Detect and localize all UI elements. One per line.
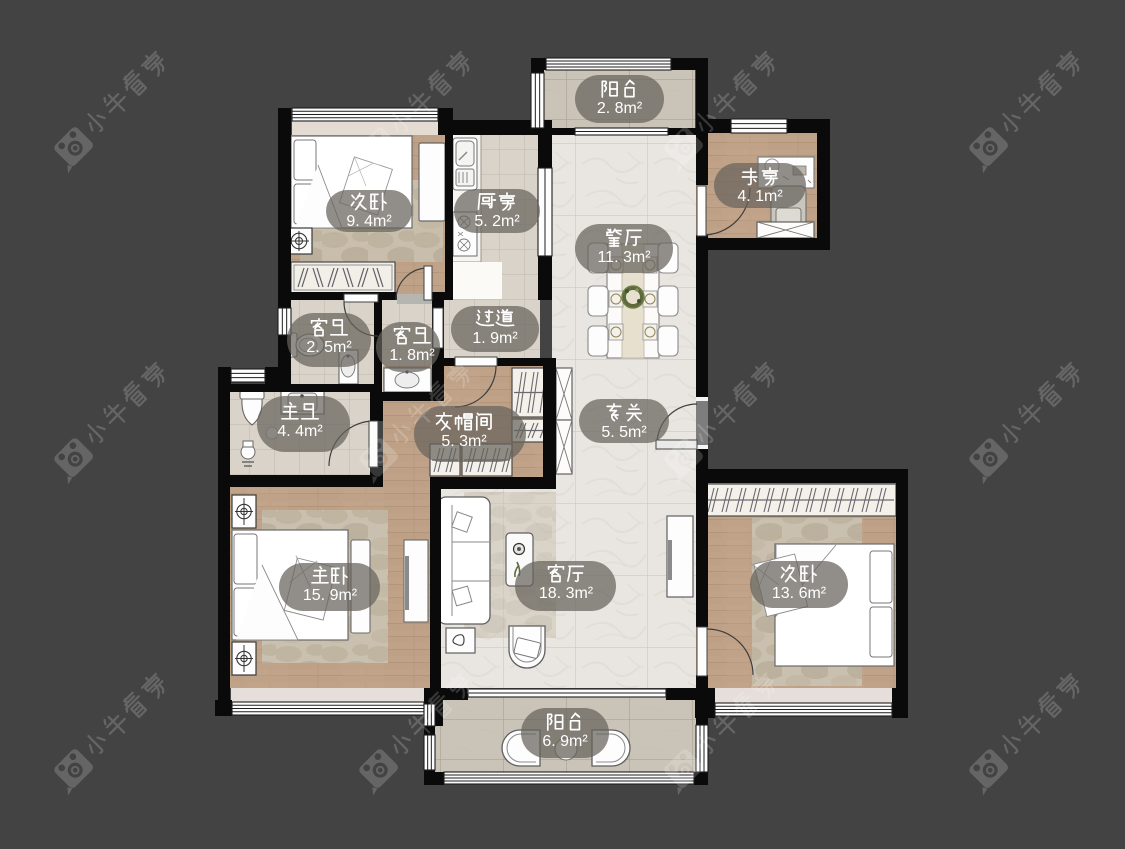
svg-text:9. 4m²: 9. 4m² <box>346 213 392 230</box>
svg-text:2. 5m²: 2. 5m² <box>306 339 352 356</box>
svg-text:2. 8m²: 2. 8m² <box>597 100 643 117</box>
svg-text:18. 3m²: 18. 3m² <box>539 585 594 602</box>
svg-text:5. 3m²: 5. 3m² <box>441 433 487 450</box>
svg-text:11. 3m²: 11. 3m² <box>597 249 651 266</box>
svg-text:15. 9m²: 15. 9m² <box>303 587 358 604</box>
svg-text:1. 9m²: 1. 9m² <box>472 330 518 347</box>
svg-text:13. 6m²: 13. 6m² <box>772 585 827 602</box>
svg-text:4. 4m²: 4. 4m² <box>277 423 323 440</box>
svg-text:1. 8m²: 1. 8m² <box>389 347 435 364</box>
svg-text:6. 9m²: 6. 9m² <box>542 733 588 750</box>
svg-text:5. 2m²: 5. 2m² <box>474 213 520 230</box>
svg-text:4. 1m²: 4. 1m² <box>737 188 783 205</box>
svg-text:5. 5m²: 5. 5m² <box>601 424 647 441</box>
